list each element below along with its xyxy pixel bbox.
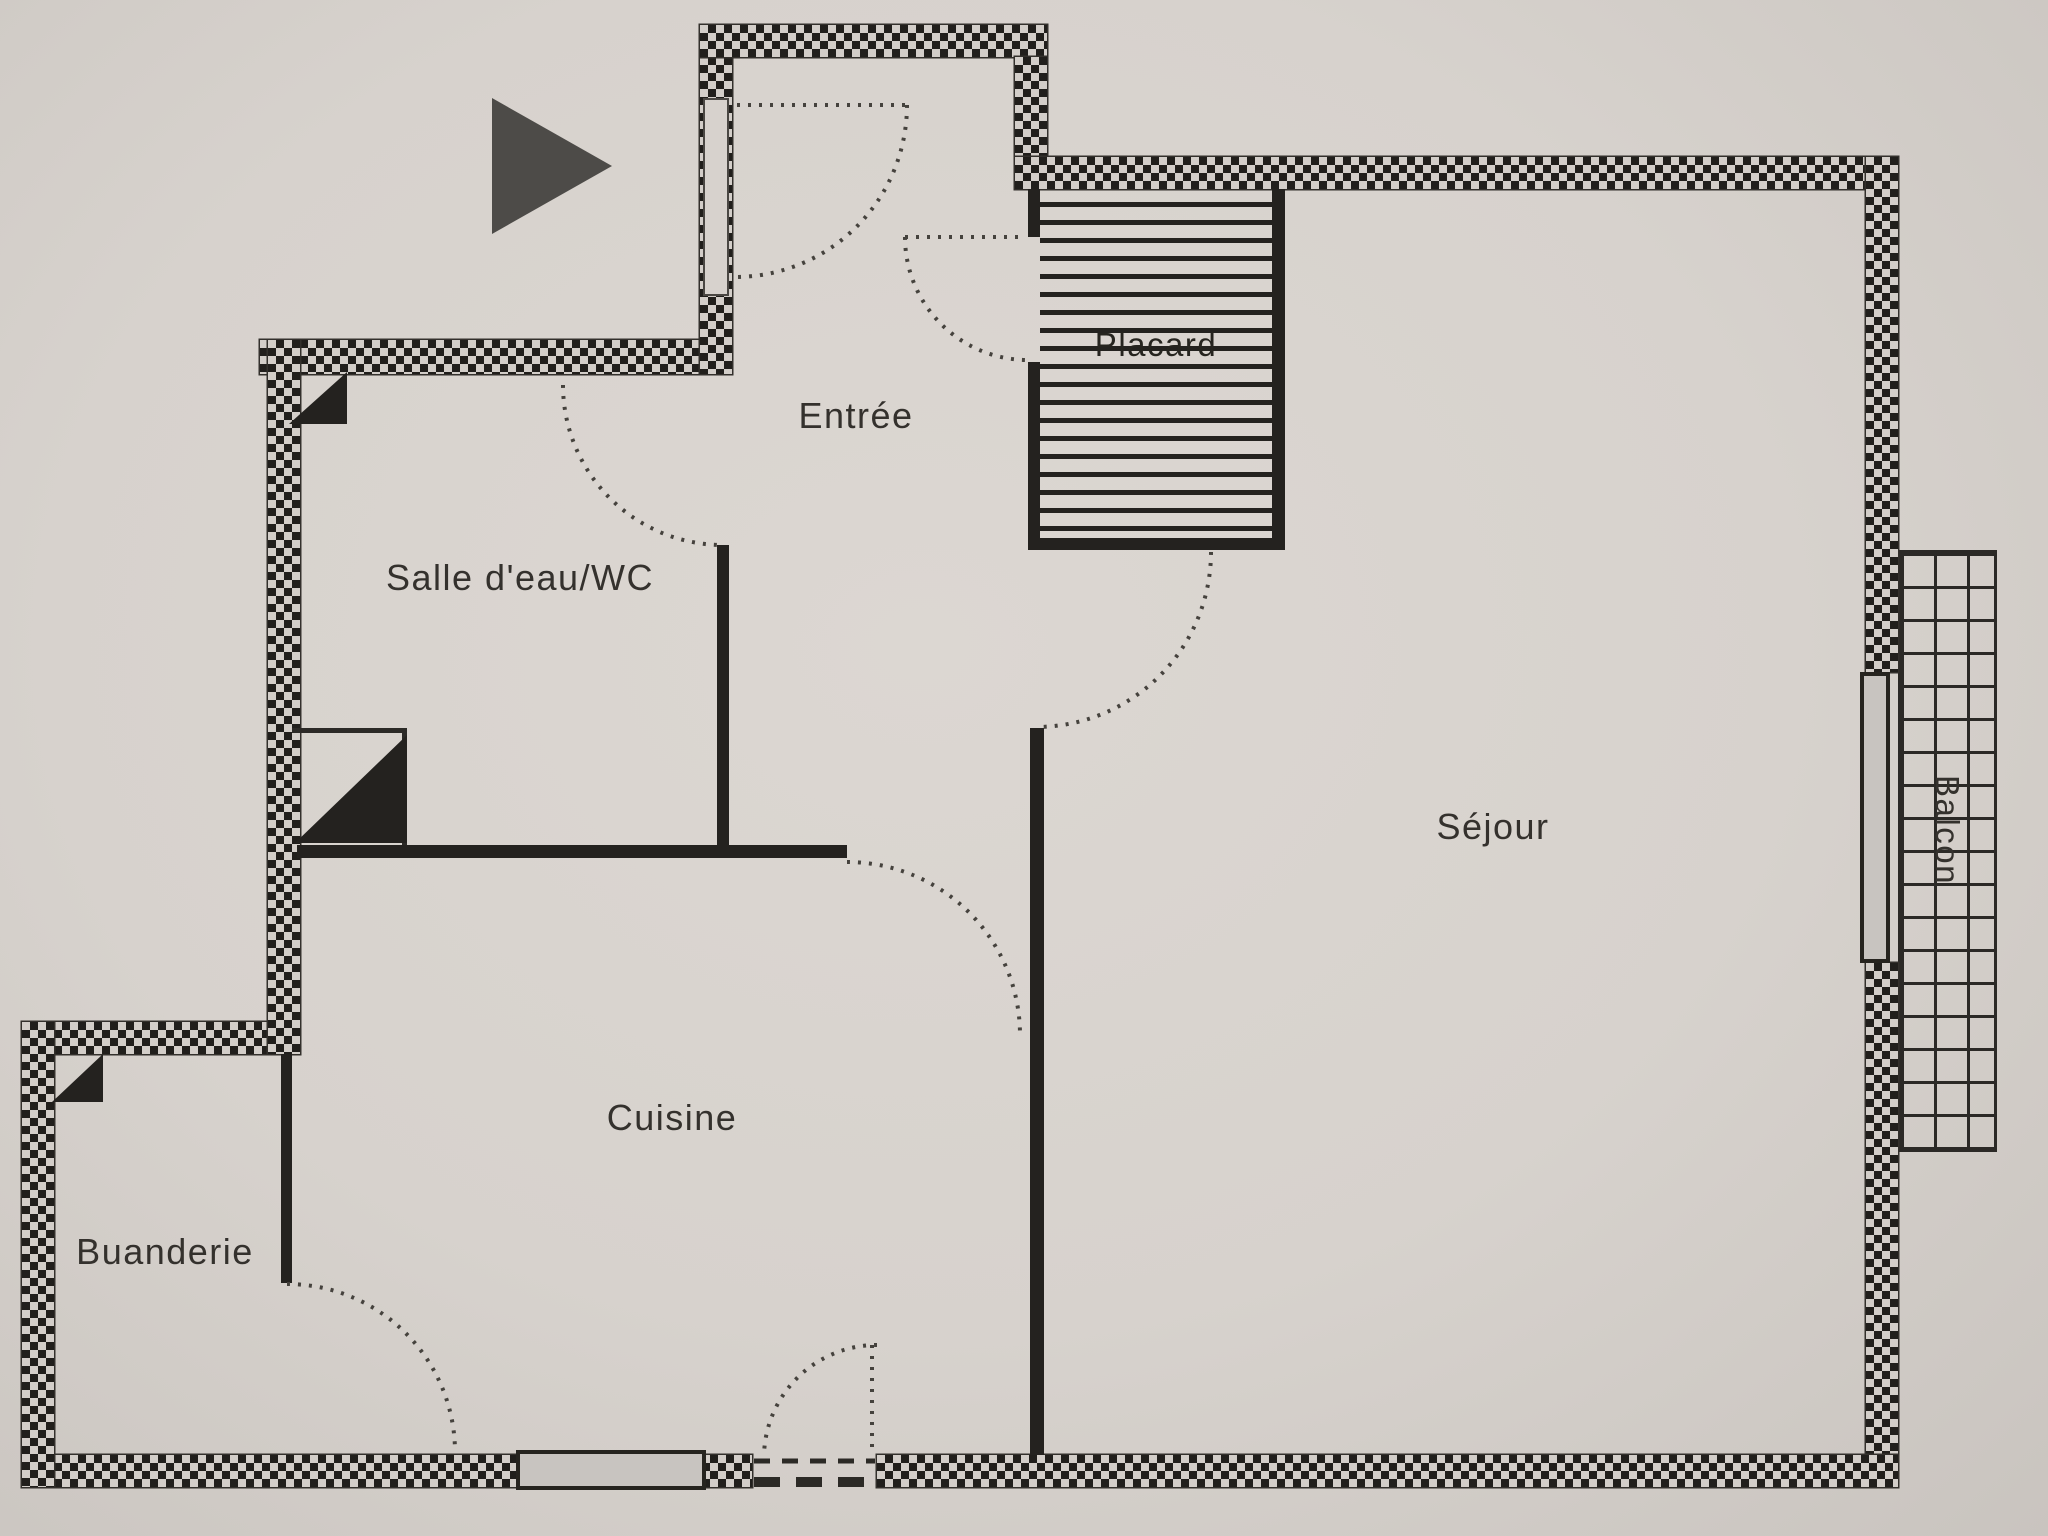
shaft-triangle-buanderie	[52, 1054, 103, 1102]
entree-cuisine-door-swing	[847, 862, 1020, 1035]
room-label-entree: Entrée	[798, 395, 913, 437]
room-label-sejour: Séjour	[1436, 806, 1549, 848]
room-label-cuisine: Cuisine	[607, 1097, 738, 1139]
placard-door-swing	[905, 237, 1028, 360]
room-label-salle-deau-wc: Salle d'eau/WC	[386, 557, 654, 599]
room-label-balcon: Balcon	[1928, 775, 1966, 885]
buanderie-door-swing	[287, 1284, 455, 1452]
sejour-door-swing	[1036, 552, 1211, 727]
shaft-triangle-salle-deau-bottom	[295, 735, 407, 843]
entry-door-swing	[735, 105, 907, 277]
north-arrow-icon	[492, 98, 612, 234]
kitchen-exterior-door-swing	[764, 1345, 877, 1455]
room-label-placard: Placard	[1095, 326, 1217, 364]
shaft-triangle-salle-deau-top	[289, 372, 347, 424]
kitchen-exterior-door-threshold	[754, 1461, 875, 1482]
floor-plan-page: Entrée Placard Salle d'eau/WC Séjour Cui…	[0, 0, 2048, 1536]
plan-linework-overlay	[0, 0, 2048, 1536]
salle-deau-door-swing	[563, 385, 723, 545]
room-label-buanderie: Buanderie	[76, 1231, 254, 1273]
